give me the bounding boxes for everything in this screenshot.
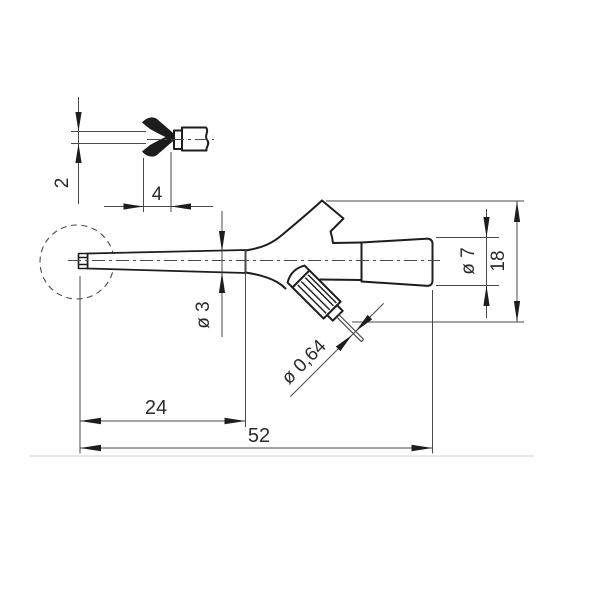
body-hump-beak bbox=[322, 201, 362, 244]
arrowhead bbox=[80, 418, 101, 425]
technical-drawing: 2 4 bbox=[0, 0, 601, 601]
arrowhead bbox=[514, 201, 520, 222]
dim-label-pin-diameter: ø 0,64 bbox=[278, 336, 331, 389]
arrowhead bbox=[80, 445, 101, 452]
dimension-tip-length: 24 bbox=[80, 250, 246, 454]
hook-detail-view: 2 4 bbox=[52, 97, 214, 212]
rear-sleeve bbox=[362, 239, 433, 286]
dim-label-hook-protrusion: 4 bbox=[152, 184, 163, 205]
dimension-probe-diameter: ø 3 bbox=[193, 211, 225, 337]
dimension-overall-length: 52 bbox=[80, 290, 433, 454]
arrowhead bbox=[75, 144, 81, 164]
dim-label-overall-length: 52 bbox=[248, 425, 270, 447]
arrowhead bbox=[412, 445, 433, 452]
dim-label-tip-length: 24 bbox=[145, 397, 167, 419]
pin-socket bbox=[285, 263, 371, 349]
arrowhead bbox=[483, 217, 489, 238]
dim-label-sleeve-diameter: ø 7 bbox=[458, 247, 479, 274]
arrowhead bbox=[124, 203, 144, 209]
body-flare-bottom bbox=[246, 273, 286, 289]
arrowhead bbox=[219, 231, 225, 252]
arrowhead bbox=[336, 333, 355, 352]
drawing-canvas: 2 4 bbox=[0, 0, 601, 601]
main-view bbox=[40, 201, 433, 300]
body-flare-top bbox=[246, 201, 323, 251]
arrowhead bbox=[75, 112, 81, 132]
arrowhead bbox=[171, 203, 191, 209]
body-bottom-edge bbox=[320, 280, 362, 281]
arrowhead bbox=[225, 418, 246, 425]
dim-label-hook-opening: 2 bbox=[52, 178, 73, 189]
dimension-hook-protrusion: 4 bbox=[104, 152, 213, 212]
dim-label-body-height: 18 bbox=[488, 250, 509, 271]
arrowhead bbox=[354, 315, 373, 334]
dim-label-probe-diameter: ø 3 bbox=[193, 301, 214, 328]
dimension-hook-opening: 2 bbox=[52, 97, 146, 204]
arrowhead bbox=[483, 286, 489, 307]
arrowhead bbox=[514, 301, 520, 322]
arrowhead bbox=[219, 273, 225, 294]
